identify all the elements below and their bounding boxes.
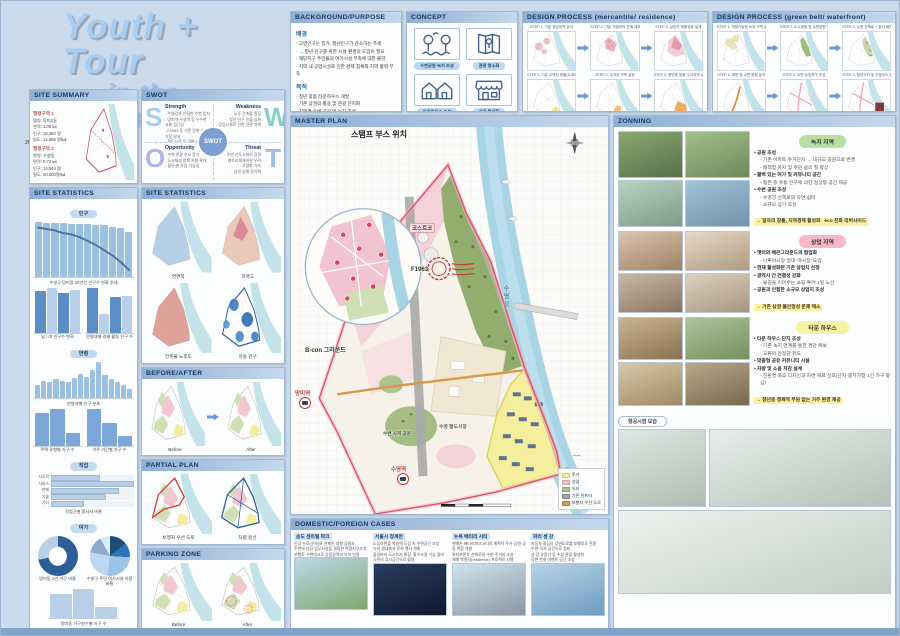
swot-letter-o: O	[145, 145, 162, 180]
list-line: • 공원과 인접한 소규모 상업지 조성	[754, 287, 891, 294]
swot-weakness-lines: 노후 건축물 밀집청년 인구 유출 심화공업시설로 인한 경관 저해	[216, 111, 261, 128]
chart-caption: 직업군별 종사자 비율	[33, 510, 134, 515]
vehicle-circulation-map	[214, 474, 281, 534]
process-map	[590, 31, 639, 71]
legend-row: 기존 인프라	[562, 493, 601, 499]
case-title: 서울시 청계천	[373, 533, 405, 540]
mangmi-station-label: 망미역	[295, 389, 310, 397]
bar	[43, 223, 50, 278]
bar	[90, 370, 95, 398]
list-line: - 나루야시장 일대 '야시장' 도입	[754, 258, 891, 265]
bar	[102, 423, 116, 446]
concept-item-waterfront-park: 수변공원·녹지 조성	[414, 28, 460, 70]
panel-master-plan: MASTER PLAN	[290, 115, 609, 515]
zoning-green-section: 녹지 지역 • 공원 조성- 기존 아파트 주거단지 → 대규모 공원으로 변경…	[618, 131, 891, 227]
panel-site-summary: SITE SUMMARY 행정구역 1 명칭: 망미2동면적: 1.05 ㎢인구…	[29, 89, 138, 184]
photo	[685, 131, 750, 178]
list-line: 젊은 층 유입 가능성	[165, 163, 206, 169]
bar	[53, 379, 58, 399]
bar	[110, 297, 121, 333]
chart-caption: 거주 기간별 가구 수	[85, 448, 134, 453]
bar	[58, 293, 69, 333]
swot-letter-w: W	[264, 104, 281, 139]
panel-header: BACKGROUND/PURPOSE	[291, 12, 401, 23]
bar	[66, 433, 80, 446]
legend-swatch	[562, 473, 570, 478]
process-map	[842, 31, 891, 71]
photo	[294, 557, 368, 610]
map-caption: 유동 인구	[215, 354, 282, 360]
parking-before-map	[145, 563, 212, 621]
hbar-row: 기타	[33, 501, 134, 507]
panel-header: SITE STATISTICS	[30, 188, 137, 199]
chart-caption: 연령대별 인구 분포	[33, 402, 134, 407]
case-title: 뉴욕 배터리 시티	[452, 533, 490, 540]
river-label: 수영강	[501, 285, 510, 309]
purpose-lines: 청년 맞춤 타운하우스 개발기존 상권의 활용 및 관광 단지화친환경 수변 공…	[296, 93, 396, 111]
f1963-label: F1963	[411, 267, 428, 273]
pedestrian-priority-map	[145, 474, 212, 534]
case-lines: 맨해튼 배터리파크시티의 계획적 주거·공원·금융 복합 개발워터프론트 산책로…	[452, 541, 526, 563]
hbar-row: 기술	[33, 494, 134, 500]
list-line: 친환경 수변 공원 및 녹지 조성	[296, 108, 396, 111]
suyeong-station-icon	[397, 473, 409, 485]
district1-lines: 명칭: 망미2동면적: 1.05 ㎢인구: 13,260 명밀도: 12,666…	[33, 118, 77, 143]
photo	[685, 317, 750, 360]
photo	[618, 273, 683, 313]
photo	[685, 362, 750, 405]
case-seine-river: 파리 센 강 자동차 중심의 강변도로를 보행로로 전환수변·녹지 공간으로 정…	[531, 533, 605, 627]
photo	[618, 231, 683, 271]
photo	[618, 362, 683, 405]
process-map	[590, 79, 639, 111]
hbar-row: 사무직	[33, 475, 134, 481]
bar	[109, 227, 116, 278]
waterside-park-label: 수변 사적 공원	[383, 431, 411, 437]
case-photo	[452, 563, 526, 616]
stat-pill-jobs: 직업	[70, 462, 98, 470]
bar	[92, 225, 99, 277]
list-line: 상권 침체 장기화	[224, 169, 261, 175]
bar	[50, 594, 72, 618]
photo	[685, 273, 750, 313]
residence-period-chart	[85, 409, 134, 447]
bar	[102, 375, 107, 398]
map-caption: 지목도	[215, 274, 282, 280]
panel-concept: CONCEPT 수변공원·녹지 조성	[406, 11, 518, 112]
swot-center-badge: SWOT	[197, 126, 229, 158]
step-caption: STEP 1. 제방 및 수변 현황 분석	[717, 73, 766, 78]
list-line: 지역 내 공업시설로 인한 경제 침체와 지역 활력 부족	[296, 63, 396, 78]
zoning-townhouse-section: 타운 하우스 • 타운 하우스 단지 조성- 기존 녹지 연계를 통한 경관 확…	[618, 317, 891, 406]
list-line: → 청년층 경제적 부담 없는 거주 환경 제공	[754, 397, 843, 404]
list-line: 청년 맞춤 타운하우스 개발	[296, 93, 396, 101]
list-line: 해당지구 주민들의 여가시설 부족에 대한 불만	[296, 55, 396, 63]
panel-background-purpose: BACKGROUND/PURPOSE 배경 고령인구는 증가, 청년인구가 감소…	[290, 11, 402, 112]
swot-grid: S Strength 수영강과 인접한 수변 입지망미역·수영역 등 우수한 교…	[142, 101, 284, 183]
storefront-icon	[466, 74, 512, 106]
list-line: 밀도: 20,000명/㎢	[33, 172, 77, 178]
process-map	[717, 79, 766, 111]
zoning-commercial-section: 상업 지역 • 옛터와 베큰그라운드의 협업화- 나루야시장 일대 '야시장' …	[618, 231, 891, 313]
economic-activity-chart	[85, 288, 134, 334]
poster-youth-tour-waterfront: Youth + Tour in the Waterfront 20222531 …	[0, 0, 900, 636]
list-line: → 일자리 창출, 지역경제 활성화	[754, 218, 822, 225]
photo	[531, 563, 605, 616]
photo	[618, 180, 683, 227]
swot-letter-t: T	[264, 145, 281, 180]
hbar-row: 판매	[33, 488, 134, 494]
step-caption: STEP 2. 도시공원 및 수변공원 노선	[780, 25, 829, 30]
list-line: 수영강과 인접한 수변 입지	[165, 111, 210, 117]
case-lines: 도심하천을 복원해 도심 속 수변공간 조성녹지 생태축과 문화 행사 개최물길…	[373, 541, 447, 563]
bcon-ground-label: B-con 그라운드	[305, 345, 346, 354]
case-songdo-central-park: 송도 센트럴 파크 인공 수로(운하)와 연계된 대형 공원과주변에 상업·업무…	[294, 533, 368, 627]
step-caption: STEP 2. 주거지 구역 설정	[590, 73, 639, 78]
list-line: 맨해튼 배터리파크시티의 계획적 주거·공원·금융 복합 개발	[452, 541, 526, 552]
bar	[84, 377, 89, 398]
title-block: Youth + Tour in the Waterfront 20222531 …	[15, 9, 287, 87]
bar	[35, 291, 46, 333]
legend-row: 상업	[562, 479, 601, 485]
arrow-right-icon	[767, 44, 779, 52]
hbar-row: 서비스	[33, 481, 134, 487]
map-caption: After	[214, 622, 281, 627]
bar	[95, 607, 117, 619]
case-photo	[294, 557, 368, 610]
concept-item-commerce: 상권 활성화	[466, 74, 512, 111]
case-photo	[531, 563, 605, 616]
map-caption: Before	[145, 447, 205, 452]
list-line: 밀도: 12,666 명/㎢	[33, 137, 77, 143]
case-photo	[373, 563, 447, 616]
map-floating-population	[215, 283, 282, 354]
legend-row: 보행자 우선 도로	[562, 500, 601, 506]
map-caption: 차량 동선	[214, 535, 281, 541]
swot-opportunity-lines: 수변 관광 수요 증가도시재생 정책 지원 확대젊은 층 유입 가능성	[165, 152, 206, 169]
parking-after-map	[214, 563, 281, 621]
photo	[709, 429, 891, 507]
photo	[685, 231, 750, 271]
costco-label: 코스트코	[409, 223, 435, 233]
bar	[109, 379, 114, 399]
list-line: - 기존 아파트 주거단지 → 대규모 공원으로 변경	[754, 157, 891, 164]
green-zone-photos	[618, 131, 750, 227]
leisure-facility-pie	[90, 536, 130, 576]
arrow-right-icon	[829, 44, 841, 52]
swot-threat-title: Threat	[224, 145, 261, 151]
chart-caption: 수영구 주민 여가시설 이용 비율	[85, 577, 134, 586]
step-caption: STEP 3. 상업지 재활성화 설계	[654, 25, 703, 30]
aerial-view-label: 항공시점 모습	[618, 416, 667, 427]
legend-swatch	[562, 494, 570, 499]
bar	[72, 378, 77, 399]
photo	[618, 510, 891, 594]
chart-caption: 연령대별 경제 활동 인구 수	[85, 335, 134, 340]
panel-header: DESIGN PROCESS (green belt/ waterfront)	[713, 12, 895, 23]
step-caption: STEP 1. 재생가능한 녹지 구역 분석	[717, 25, 766, 30]
commercial-zone-photos	[618, 231, 750, 313]
chart-caption: 수영구 망미동 10년간 인구수 변화 추세	[33, 281, 134, 286]
list-line: • 옛터와 베큰그라운드의 협업화	[754, 250, 891, 257]
mangmi-station-icon	[299, 397, 311, 409]
list-line: - 교류와 안정감 유도	[754, 351, 891, 358]
photo	[373, 563, 447, 616]
housing-type-chart	[33, 409, 82, 447]
bar	[70, 290, 81, 333]
list-line: • 공원 조성	[754, 150, 891, 157]
panel-parking-zone: PARKING ZONE Before After	[141, 548, 285, 631]
concept-label: 상권 활성화	[473, 108, 505, 111]
arrow-right-icon	[577, 92, 589, 100]
list-line: - 소규모 상가 조성	[754, 202, 891, 209]
step-caption: STEP 3. 청년거리 및 관광코스 완성	[842, 73, 891, 78]
panel-header: ZONNING	[614, 116, 895, 127]
bar	[122, 296, 133, 333]
process-map	[717, 31, 766, 71]
household-size-chart	[48, 589, 119, 620]
list-line: → 청년 인구를 위한 시설·환경의 도입이 필요	[296, 48, 396, 56]
step-caption: STEP 2. 수변 상업지구 조성	[780, 73, 829, 78]
legend-row: 녹지	[562, 486, 601, 492]
master-plan-legend: 주거상업녹지기존 인프라보행자 우선 도로	[558, 468, 605, 510]
population-trend-chart	[33, 222, 134, 278]
photo	[618, 131, 683, 178]
list-line: - 수영강 산책로와 자연 쉼터	[754, 195, 891, 202]
bar	[50, 409, 64, 446]
stat-pill-age: 연령	[70, 350, 98, 358]
townhouse-zone-bullets: • 타운 하우스 단지 조성- 기존 녹지 연계를 통한 경관 확보- 교류와 …	[754, 336, 891, 406]
panel-header: BEFORE/AFTER	[142, 368, 284, 379]
poster-title-line1: Youth + Tour	[15, 9, 287, 79]
panel-design-process-mercantile: DESIGN PROCESS (mercantile/ residence) S…	[522, 11, 708, 112]
bar	[117, 228, 124, 278]
district2-title: 행정구역 2	[33, 146, 77, 152]
bar	[127, 389, 132, 398]
panel-header: SITE SUMMARY	[30, 90, 137, 101]
panel-header: PARTIAL PLAN	[142, 460, 284, 471]
bar	[76, 224, 83, 278]
list-line: eco 친화 리버사이드	[822, 218, 868, 225]
swot-strength-title: Strength	[165, 104, 210, 110]
case-battery-park-city: 뉴욕 배터리 시티 맨해튼 배터리파크시티의 계획적 주거·공원·금융 복합 개…	[452, 533, 526, 627]
case-lines: 자동차 중심의 강변도로를 보행로로 전환수변·녹지 공간으로 정비센 강 유람…	[531, 541, 605, 563]
bar	[73, 589, 95, 619]
map-caption: 보행자 우선 도로	[145, 535, 212, 541]
panel-site-statistics-charts: SITE STATISTICS 인구 수영구 망미동 10년간 인구수 변화 추…	[29, 187, 138, 631]
arrow-right-icon	[767, 92, 779, 100]
townhouse-zone-pill: 타운 하우스	[796, 321, 848, 334]
panel-cases: DOMESTIC/FOREIGN CASES 송도 센트럴 파크 인공 수로(운…	[290, 518, 609, 631]
step-caption: STEP 1. 기존 주택지 현황(노후도) 분석	[527, 73, 576, 78]
concept-label: 타운하우스 조성	[417, 108, 457, 111]
case-cheonggyecheon: 서울시 청계천 도심하천을 복원해 도심 속 수변공간 조성녹지 생태축과 문화…	[373, 533, 447, 627]
bar	[35, 385, 40, 399]
houses-icon	[414, 74, 460, 106]
chart-caption: 망미동 1인 가구 비율	[33, 577, 82, 582]
map-pins-icon	[466, 28, 512, 60]
process-map	[780, 79, 829, 111]
bar	[68, 224, 75, 278]
list-line: • 광역시 간 연결성 강화	[754, 273, 891, 280]
green-zone-pill: 녹지 지역	[799, 135, 846, 148]
photo	[452, 563, 526, 616]
legend-swatch	[562, 480, 570, 485]
map-building-age	[145, 283, 212, 354]
panel-swot: SWOT S Strength 수영강과 인접한 수변 입지망미역·수영역 등 …	[141, 89, 285, 184]
bar	[100, 225, 107, 277]
case-title: 파리 센 강	[531, 533, 555, 540]
swot-weakness-title: Weakness	[216, 104, 261, 110]
map-caption: After	[221, 447, 281, 452]
arrow-right-icon	[641, 92, 653, 100]
bar	[121, 385, 126, 398]
process-map	[842, 79, 891, 111]
process-map	[527, 79, 576, 111]
arrow-right-icon	[641, 44, 653, 52]
panel-before-after: BEFORE/AFTER Before	[141, 367, 285, 456]
bar	[35, 222, 42, 277]
bar	[96, 362, 101, 399]
bar	[47, 382, 52, 398]
bar	[87, 409, 101, 446]
stat-pill-leisure: 여가	[70, 524, 98, 532]
single-household-donut	[38, 536, 78, 576]
list-line: • 현재 활성화된 기존 상업지 선정	[754, 265, 891, 272]
bar	[87, 288, 98, 333]
arrow-right-icon	[577, 44, 589, 52]
district1-title: 행정구역 1	[33, 111, 77, 117]
stat-pill-population: 인구	[70, 210, 98, 218]
process-map	[654, 79, 703, 111]
master-plan-map	[291, 127, 608, 514]
bar	[51, 223, 58, 278]
paldo-market-label: 수영 팔도시장	[439, 423, 467, 430]
panel-header: DOMESTIC/FOREIGN CASES	[291, 519, 608, 530]
list-line: • 수변 공원 조성	[754, 187, 891, 194]
bar	[99, 314, 110, 333]
after-map	[221, 382, 281, 446]
bar	[35, 413, 49, 446]
case-lines: 인공 수로(운하)와 연계된 대형 공원과주변에 상업·업무시설을 결합한 복합…	[294, 541, 368, 557]
panel-header: PARKING ZONE	[142, 549, 284, 560]
list-line: 주변 신도시와의 경쟁	[224, 152, 261, 158]
jobs-chart: 사무직서비스판매기술기타	[33, 474, 134, 506]
concept-item-tour-map: 관광 명소화	[466, 28, 512, 70]
step-caption: STEP 2. 기존 거점과의 연계 계획	[590, 25, 639, 30]
step-caption: STEP 3. 청년층 맞춤 주거지역 설계	[654, 73, 703, 78]
map-floor-area	[145, 202, 212, 273]
list-line: → 기존 상권 불안정성 문제 해소	[754, 304, 822, 311]
park-waterfront-icon	[414, 28, 460, 60]
step-caption: STEP 3. 수변 산책로 + 쉼터 배치	[842, 25, 891, 30]
map-land-category	[215, 202, 282, 273]
panel-header: SITE STATISTICS	[142, 188, 284, 199]
commercial-zone-pill: 상업 지역	[799, 235, 846, 248]
panel-header: DESIGN PROCESS (mercantile/ residence)	[523, 12, 707, 23]
list-line: - 친환경 목조 디자인과 자연 재료 선호(단지·중저가형·1인 가구 중심)	[754, 373, 891, 388]
before-map	[145, 382, 205, 446]
chart-caption: 주택 유형별 가구 수	[33, 448, 82, 453]
concept-label: 수변공원·녹지 조성	[414, 62, 459, 70]
photo	[618, 317, 683, 360]
photo	[685, 180, 750, 227]
commercial-zone-bullets: • 옛터와 베큰그라운드의 협업화- 나루야시장 일대 '야시장' 도입• 현재…	[754, 250, 891, 313]
map-caption: 건축물 노후도	[145, 354, 212, 360]
townhouse-zone-photos	[618, 317, 750, 406]
list-line: 망미역·수영역 등 우수한 교통 접근성	[165, 117, 210, 128]
bar	[47, 288, 58, 333]
bar	[118, 436, 132, 446]
chart-caption: 망미동 가구원수별 가구 수	[33, 622, 134, 627]
map-caption: 연면적	[145, 274, 212, 280]
legend-swatch	[562, 501, 570, 506]
panel-site-statistics-maps: SITE STATISTICS 연면적 지목도	[141, 187, 285, 364]
chart-caption: 남 / 여 인구수 변화	[33, 335, 82, 340]
list-line: • 맞춤형 공유 커뮤니티 시설	[754, 358, 891, 365]
bar	[60, 381, 65, 399]
bar	[115, 382, 120, 398]
process-map	[780, 31, 829, 71]
district2-lines: 명칭: 수영동면적: 0.72 ㎢인구: 14,544 명밀도: 20,000명…	[33, 153, 77, 178]
bar	[84, 224, 91, 277]
age-distribution-chart	[33, 362, 134, 400]
poster-bottom-band	[1, 628, 899, 635]
list-line: 기존 상권의 활용 및 관광 단지화	[296, 100, 396, 108]
bar	[41, 381, 46, 398]
list-line: - 젊은 층 유동 인구에 의한 일상형 공간 제공	[754, 180, 891, 187]
list-line: - 기존 녹지 연계를 통한 경관 확보	[754, 343, 891, 350]
gender-population-chart	[33, 288, 82, 334]
bar	[60, 223, 67, 277]
swot-letter-s: S	[145, 104, 162, 139]
legend-swatch	[562, 487, 570, 492]
list-line: 고령인구는 증가, 청년인구가 감소하는 추세	[296, 40, 396, 48]
legend-row: 주거	[562, 472, 601, 478]
list-line: • 타운 하우스 단지 조성	[754, 336, 891, 343]
panel-header: SWOT	[142, 90, 284, 101]
process-map	[654, 31, 703, 71]
bar	[78, 374, 83, 398]
panel-zoning: ZONNING 녹지 지역 • 공원 조성- 기존 아파트 주거단지 → 대규모…	[613, 115, 896, 631]
arrow-right-icon	[207, 413, 219, 421]
donut-hole	[48, 547, 66, 565]
stamp-booth-label: 스탬프 부스 위치	[319, 129, 439, 140]
bar	[66, 382, 71, 399]
list-line: - 쾌적함 유지 및 주민 삶의 질 향상	[754, 165, 891, 172]
list-line: • 차량 및 소음 저감 설계	[754, 366, 891, 373]
list-line: 공업시설로 인한 경관 저해	[216, 122, 261, 128]
panel-partial-plan: PARTIAL PLAN 보행자 우선 도로 차량 동선	[141, 459, 285, 545]
aerial-render-photos	[618, 429, 891, 594]
panel-design-process-greenbelt: DESIGN PROCESS (green belt/ waterfront) …	[712, 11, 896, 112]
site-summary-text: 행정구역 1 명칭: 망미2동면적: 1.05 ㎢인구: 13,260 명밀도:…	[33, 104, 77, 180]
map-caption: Before	[145, 622, 212, 627]
panel-header: CONCEPT	[407, 12, 517, 23]
suyeong-station-label: 수영역	[391, 465, 406, 473]
swot-threat-lines: 주변 신도시와의 경쟁젠트리피케이션 우려고령화 가속상권 침체 장기화	[224, 152, 261, 175]
process-map	[527, 31, 576, 71]
site-summary-map	[80, 104, 134, 180]
case-title: 송도 센트럴 파크	[294, 533, 332, 540]
concept-item-townhouse: 타운하우스 조성	[414, 74, 460, 111]
concept-label: 관광 명소화	[473, 62, 505, 70]
bar	[125, 232, 132, 277]
list-line: • 활력 있는 여가 및 커뮤니티 공간	[754, 172, 891, 179]
list-line: - 물길을 이어주는 쇼핑·투어 1일 노선	[754, 280, 891, 287]
panel-header: MASTER PLAN	[291, 116, 608, 127]
step-caption: STEP 1. 기존 상업지역 분석	[527, 25, 576, 30]
